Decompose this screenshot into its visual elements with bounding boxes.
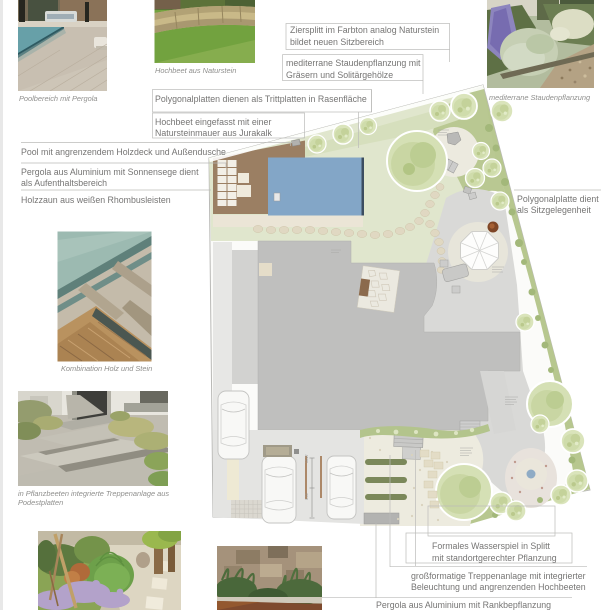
svg-text:19.27: 19.27 (305, 454, 309, 463)
svg-text:5.00: 5.00 (305, 493, 309, 500)
svg-text:Beleuchtung und angrenzenden H: Beleuchtung und angrenzenden Hochbeeten (411, 582, 586, 592)
svg-text:Natursteinmauer aus Jurakalk: Natursteinmauer aus Jurakalk (155, 128, 272, 138)
svg-text:Pool mit angrenzendem Holzdeck: Pool mit angrenzendem Holzdeck und Außen… (21, 147, 226, 157)
svg-text:Podestplatten: Podestplatten (18, 498, 63, 507)
svg-text:Polygonalplatte dient: Polygonalplatte dient (517, 194, 599, 204)
svg-text:Poolbereich mit Pergola: Poolbereich mit Pergola (19, 94, 97, 103)
svg-text:als Aufenthaltsbereich: als Aufenthaltsbereich (21, 178, 107, 188)
svg-text:mediterrane Staudenpflanzung: mediterrane Staudenpflanzung (489, 93, 591, 102)
svg-text:Pergola aus Aluminium mit Rank: Pergola aus Aluminium mit Rankbepflanzun… (376, 600, 551, 610)
svg-text:Pergola aus Aluminium mit Sonn: Pergola aus Aluminium mit Sonnensege die… (21, 167, 199, 177)
svg-text:bildet neuen Sitzbereich: bildet neuen Sitzbereich (290, 37, 384, 47)
svg-text:als Sitzgelegenheit: als Sitzgelegenheit (517, 205, 591, 215)
svg-text:Holzzaun aus weißen Rhombuslei: Holzzaun aus weißen Rhombusleisten (21, 195, 171, 205)
svg-text:Ziersplitt im Farbton analog N: Ziersplitt im Farbton analog Naturstein (290, 25, 439, 35)
svg-text:mediterrane Staudenpflanzung m: mediterrane Staudenpflanzung mit (286, 58, 421, 68)
svg-text:großformatige Treppenanlage mi: großformatige Treppenanlage mit integrie… (411, 571, 586, 581)
svg-text:in Pflanzbeeten integrierte Tr: in Pflanzbeeten integrierte Treppenanlag… (18, 489, 169, 498)
svg-text:Kombination Holz und Stein: Kombination Holz und Stein (61, 364, 152, 373)
svg-text:Gräsern und Solitärgehölze: Gräsern und Solitärgehölze (286, 70, 393, 80)
svg-text:Hochbeet aus Naturstein: Hochbeet aus Naturstein (155, 66, 236, 75)
svg-text:mit standortgerechter Pflanzun: mit standortgerechter Pflanzung (432, 553, 557, 563)
svg-text:Polygonalplatten dienen als Tr: Polygonalplatten dienen als Trittplatten… (155, 94, 367, 104)
svg-text:Formales Wasserspiel in Splitt: Formales Wasserspiel in Splitt (432, 541, 551, 551)
svg-text:Hochbeet eingefasst mit einer: Hochbeet eingefasst mit einer (155, 117, 271, 127)
